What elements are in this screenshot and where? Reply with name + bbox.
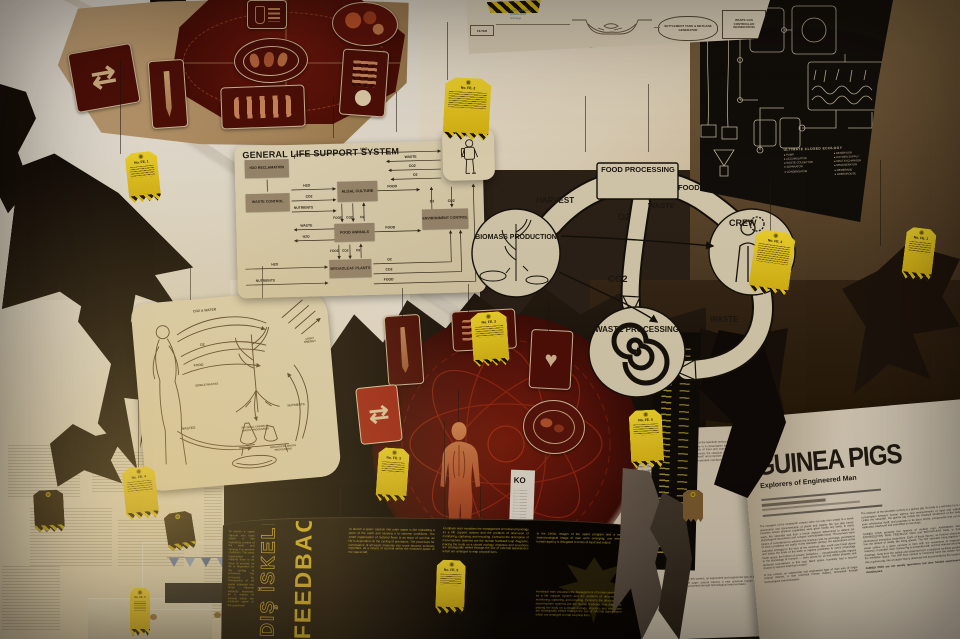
cycle-co2: CO2 <box>608 274 628 285</box>
tag-text-lines <box>381 461 405 474</box>
settlement-label: SETTLEMENT TANK & METHANE GENERATOR <box>659 25 717 32</box>
hanging-string <box>138 400 139 470</box>
tag-hole <box>139 154 142 157</box>
pennant <box>185 558 195 567</box>
legend-item: ● CONDENSATOR <box>784 169 828 175</box>
flow-label: CO2 <box>385 267 392 271</box>
flow-label: WASTE <box>404 155 416 159</box>
essay-column: The explorer of the twentieth century is… <box>861 504 960 574</box>
hanging-string <box>444 420 445 562</box>
dark-specimen-tag <box>163 510 197 552</box>
dots-grid-icon <box>352 60 378 88</box>
cycle-biomass: BIOMASS PRODUCTION <box>473 234 559 242</box>
flow-label: CO2 <box>448 199 455 203</box>
pennant <box>201 558 211 567</box>
cycle-harvest: HARVEST <box>536 196 574 205</box>
ko-title: KO <box>514 476 535 486</box>
tool-icon <box>399 327 409 373</box>
hanging-string <box>648 84 649 152</box>
cycle-waste-top: WASTE <box>648 201 675 210</box>
exhibition-photo: The voyagers of the nineteenth century w… <box>0 0 960 639</box>
cycle-crew: CREW <box>729 218 757 228</box>
closed-ecology-sketch <box>130 288 342 492</box>
tag-text-lines <box>475 325 504 338</box>
tag-hole <box>47 492 50 495</box>
aqua-blue-labels: fresh vegetables potable H2O drainage <box>510 8 531 21</box>
food-blob <box>554 424 565 433</box>
cycle-o2: O2 <box>618 212 630 222</box>
flow-label: H2O <box>360 147 367 151</box>
tag-hole <box>644 412 647 415</box>
glss-box-h2o-reclamation: H2O RECLAMATION <box>245 159 289 178</box>
flow-label: FOOD <box>385 225 395 229</box>
flow-label: O2 <box>360 215 364 219</box>
tag-hole <box>137 469 140 472</box>
glss-box-waste-control: WASTE CONTROL <box>245 193 289 212</box>
flow-label: FOOD <box>194 363 204 368</box>
recycle-arrows-icon: ⇄ <box>89 61 119 95</box>
pictogram-card-pencil <box>148 59 189 129</box>
wall-paragraph: In this context, an augmented and engine… <box>688 575 764 588</box>
settlement-box: SETTLEMENT TANK & METHANE GENERATOR <box>658 16 718 41</box>
flow-label: CO2 <box>342 248 349 252</box>
aqua-pipe-line <box>496 24 570 25</box>
hanging-string <box>770 180 771 234</box>
flow-label: O2 <box>356 248 360 252</box>
grid-icon <box>268 8 280 22</box>
flow-label: FOOD <box>333 216 342 220</box>
tag-hole <box>450 562 453 565</box>
hanging-string <box>480 486 481 520</box>
hanging-string <box>190 268 191 300</box>
flow-label: CO2 <box>409 164 416 168</box>
hanging-string <box>396 92 397 132</box>
pictogram-card-recycle: ⇄ <box>355 384 403 445</box>
tag-text-lines <box>633 423 659 435</box>
essay-column: The voyagers of the nineteenth century w… <box>760 517 859 584</box>
panel-text-column: To launch a space capsule into outer spa… <box>347 528 434 637</box>
essay-paragraph: GUINEA PIGS presents five species of mod… <box>863 524 960 564</box>
panel-text-sliver: To launch a space capsule into outer spa… <box>227 530 254 632</box>
hanging-string <box>468 284 469 314</box>
tag-text-lines <box>440 573 461 585</box>
specimen-tag: No. FE. 5 <box>435 560 466 615</box>
glss-box-algal-culture: ALGAL CULTURE <box>337 181 378 202</box>
flow-label: NUTRIENTS <box>256 278 276 283</box>
hanging-string <box>585 96 586 152</box>
tag-number: No. FE. 5 <box>130 596 150 599</box>
specimen-tag: No. FE. 1 <box>124 150 161 203</box>
tag-hole <box>920 230 923 233</box>
case-coin <box>150 614 157 620</box>
tag-hole <box>467 80 470 83</box>
case-coin <box>214 612 221 618</box>
specimen-tag: No. FE. 4 <box>629 409 665 469</box>
hanging-string <box>340 488 341 520</box>
glss-box-broadleaf-plants: BROADLEAF PLANTS <box>329 259 371 278</box>
fruit-icon <box>345 12 362 29</box>
cycle-food: FOOD <box>678 183 700 192</box>
tag-hole <box>692 493 695 496</box>
hanging-string <box>880 160 881 246</box>
flow-label: H2O <box>303 183 310 187</box>
specimen-tag: No. FE. 2 <box>442 77 491 141</box>
specimen-tag: No. FE. 1 <box>901 226 937 281</box>
tag-hole <box>774 234 777 237</box>
aqua-pipe-line <box>654 27 660 28</box>
flow-label: CO2 <box>346 215 353 219</box>
dot-circle-icon <box>354 89 371 106</box>
specimen-tag: No. FE. 2 <box>470 311 510 367</box>
hanging-string <box>333 96 334 138</box>
hanging-string <box>548 300 549 332</box>
tag-text-lines <box>756 242 790 264</box>
meat-piece <box>248 52 260 68</box>
flow-label: FOOD <box>384 277 394 281</box>
filter-label: FILTER <box>477 29 487 33</box>
cycle-waste-right: WASTE <box>710 315 738 324</box>
hanging-string <box>402 288 403 318</box>
fish-pond-sketch <box>570 14 654 48</box>
hanging-string <box>262 266 263 298</box>
tag-text-lines <box>130 164 155 177</box>
fruit-icon <box>372 23 384 35</box>
flow-label: O2 <box>430 199 435 203</box>
radiator-coil-icon <box>234 95 292 119</box>
specimen-tag: No. FE. 4 <box>121 465 159 520</box>
tag-number: No. FE. 5 <box>437 568 466 573</box>
panel-title-turkish: DIŞ İSKELET <box>257 525 281 637</box>
small-brown-tag <box>683 490 703 522</box>
flow-label: WASTE <box>300 223 312 227</box>
human-plant-panel: CO2 & WATER O2 FOOD EDIBLE WASTES WASTES… <box>130 288 342 492</box>
aqua-label-drain: drainage <box>510 16 531 20</box>
dark-specimen-tag <box>33 489 65 533</box>
flow-label: O2 <box>413 173 418 177</box>
cycle-waste-processing: WASTE PROCESSING <box>591 326 683 335</box>
filter-box: FILTER <box>470 25 494 36</box>
pencil-icon <box>162 71 173 117</box>
meat-icon <box>242 45 299 77</box>
tag-hole <box>487 314 490 317</box>
pictogram-card-radiator <box>220 85 305 130</box>
fruit-icon <box>363 11 377 25</box>
meat-piece <box>263 51 275 67</box>
tag-text-lines <box>127 479 153 493</box>
bottle-icon <box>255 6 265 24</box>
cycle-food-processing: FOOD PROCESSING <box>600 166 676 175</box>
tag-text-lines <box>908 240 931 254</box>
hanging-string <box>120 60 121 154</box>
faint-wall-text <box>2 566 60 630</box>
glss-box-food-animals: FOOD ANIMALS <box>334 223 374 242</box>
flow-label: O2 <box>387 257 392 261</box>
flow-label: NUTRIENTS <box>294 205 314 210</box>
essay-paragraph: The voyagers of the nineteenth century w… <box>760 517 858 571</box>
pictogram-card-dots <box>339 48 389 117</box>
flow-label: CO2 <box>305 194 312 198</box>
tag-hole <box>176 514 179 517</box>
pictogram-card-bottle <box>247 0 287 29</box>
feedback-man-panel: To launch a space capsule into outer spa… <box>221 515 643 639</box>
flow-label: H2O <box>303 235 310 239</box>
pennant <box>169 558 179 567</box>
specimen-tag: No. FE. 5 <box>130 588 150 636</box>
specimen-tag: No. FE. 3 <box>375 447 410 503</box>
flow-label: O2 <box>200 343 205 347</box>
tag-text-lines <box>134 601 146 612</box>
flow-label: H2O <box>271 262 278 266</box>
tag-hole <box>139 591 142 594</box>
food-blob <box>540 418 553 428</box>
flow-label: FOOD <box>330 249 339 253</box>
hanging-string <box>447 22 448 80</box>
incineration-label: WASTE GAS CONTROLLED INCINERATION <box>723 19 765 29</box>
panel-title-english: FEEDBACK MAN <box>289 521 318 639</box>
meat-piece <box>276 51 289 67</box>
flow-label: FOOD <box>387 184 397 188</box>
tag-text-lines <box>448 91 487 109</box>
pictogram-card-tool <box>384 314 425 386</box>
meal-icon <box>532 408 577 446</box>
recycle-arrows-icon: ⇄ <box>368 402 391 428</box>
tag-hole <box>393 450 396 453</box>
pictogram-card-recycle-large: ⇄ <box>67 43 140 113</box>
